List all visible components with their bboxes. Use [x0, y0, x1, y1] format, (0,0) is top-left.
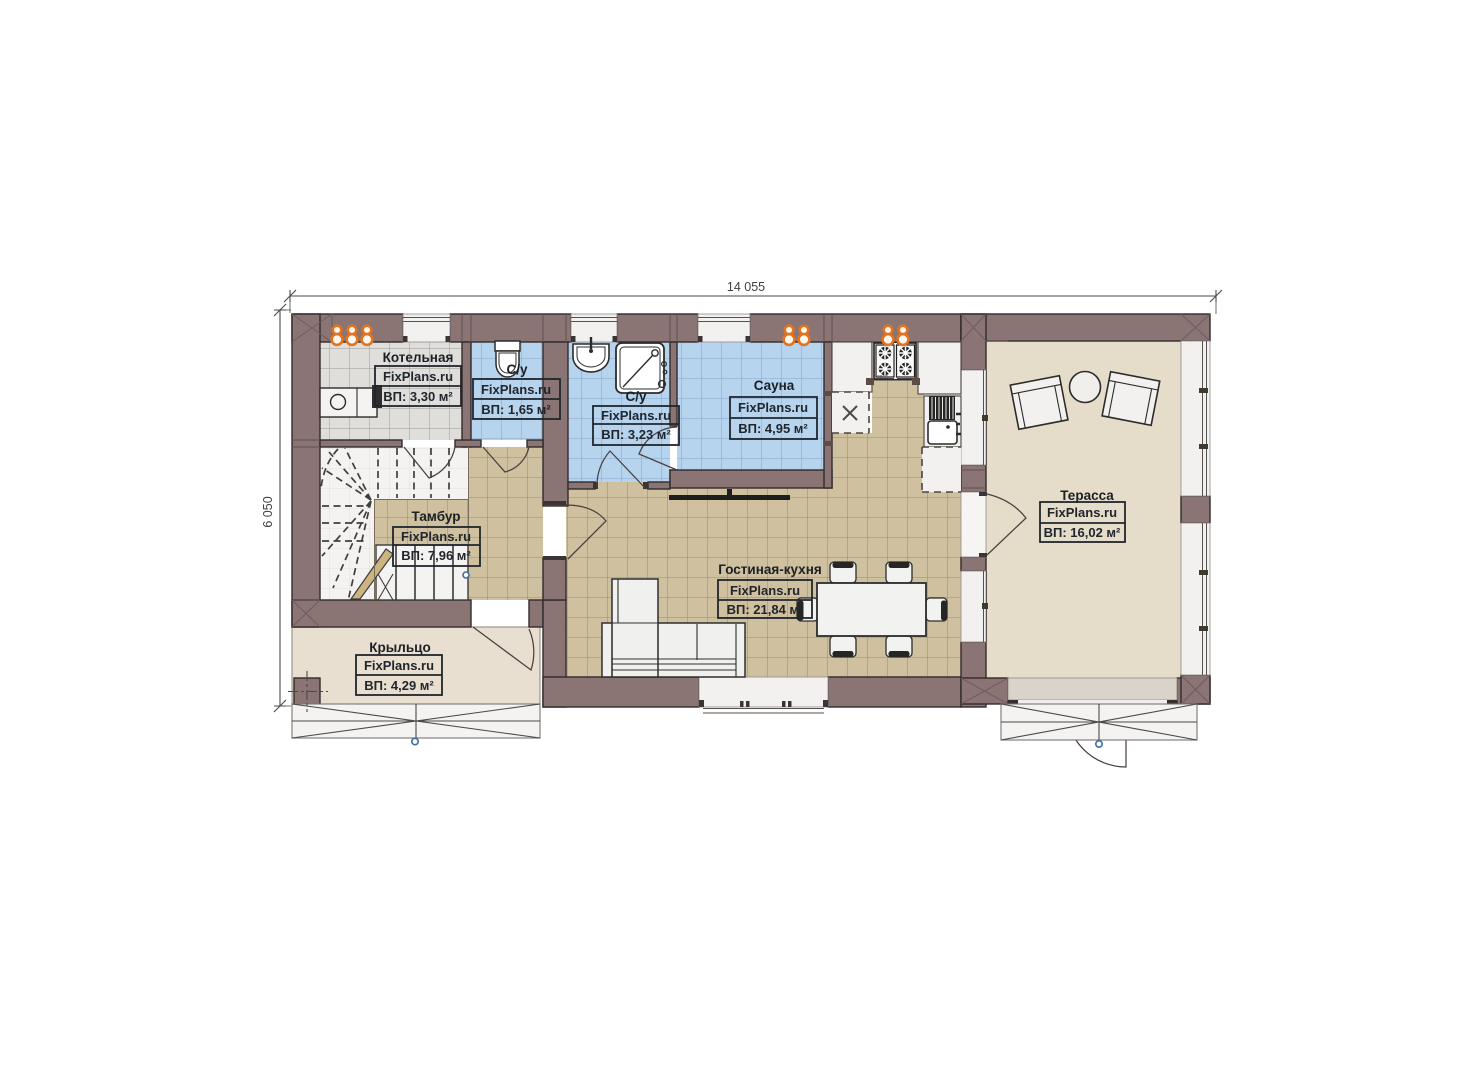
- svg-text:FixPlans.ru: FixPlans.ru: [1047, 505, 1117, 520]
- svg-text:С/у: С/у: [625, 389, 647, 404]
- svg-text:FixPlans.ru: FixPlans.ru: [738, 400, 808, 415]
- svg-text:Крыльцо: Крыльцо: [369, 640, 430, 655]
- svg-text:С/у: С/у: [506, 362, 528, 377]
- svg-text:ВП: 16,02 м²: ВП: 16,02 м²: [1044, 525, 1121, 540]
- svg-text:14 055: 14 055: [727, 280, 765, 294]
- svg-text:FixPlans.ru: FixPlans.ru: [401, 529, 471, 544]
- svg-text:FixPlans.ru: FixPlans.ru: [364, 658, 434, 673]
- svg-text:ВП: 4,95 м²: ВП: 4,95 м²: [738, 421, 808, 436]
- svg-text:Гостиная-кухня: Гостиная-кухня: [718, 562, 821, 577]
- svg-text:ВП: 3,23 м²: ВП: 3,23 м²: [601, 427, 671, 442]
- svg-text:ВП: 7,96 м²: ВП: 7,96 м²: [401, 548, 471, 563]
- svg-text:FixPlans.ru: FixPlans.ru: [481, 382, 551, 397]
- svg-text:ВП: 1,65 м²: ВП: 1,65 м²: [481, 402, 551, 417]
- svg-text:ВП: 21,84 м²: ВП: 21,84 м²: [727, 602, 804, 617]
- svg-text:6 050: 6 050: [261, 496, 275, 527]
- svg-text:Котельная: Котельная: [383, 350, 454, 365]
- svg-text:FixPlans.ru: FixPlans.ru: [601, 408, 671, 423]
- svg-text:ВП: 3,30 м²: ВП: 3,30 м²: [383, 389, 453, 404]
- svg-text:2055: 2055: [877, 375, 888, 381]
- svg-text:FixPlans.ru: FixPlans.ru: [730, 583, 800, 598]
- svg-text:Тамбур: Тамбур: [412, 509, 461, 524]
- svg-text:Сауна: Сауна: [754, 378, 795, 393]
- svg-text:ВП: 4,29 м²: ВП: 4,29 м²: [364, 678, 434, 693]
- svg-text:FixPlans.ru: FixPlans.ru: [383, 369, 453, 384]
- svg-text:Терасса: Терасса: [1060, 488, 1114, 503]
